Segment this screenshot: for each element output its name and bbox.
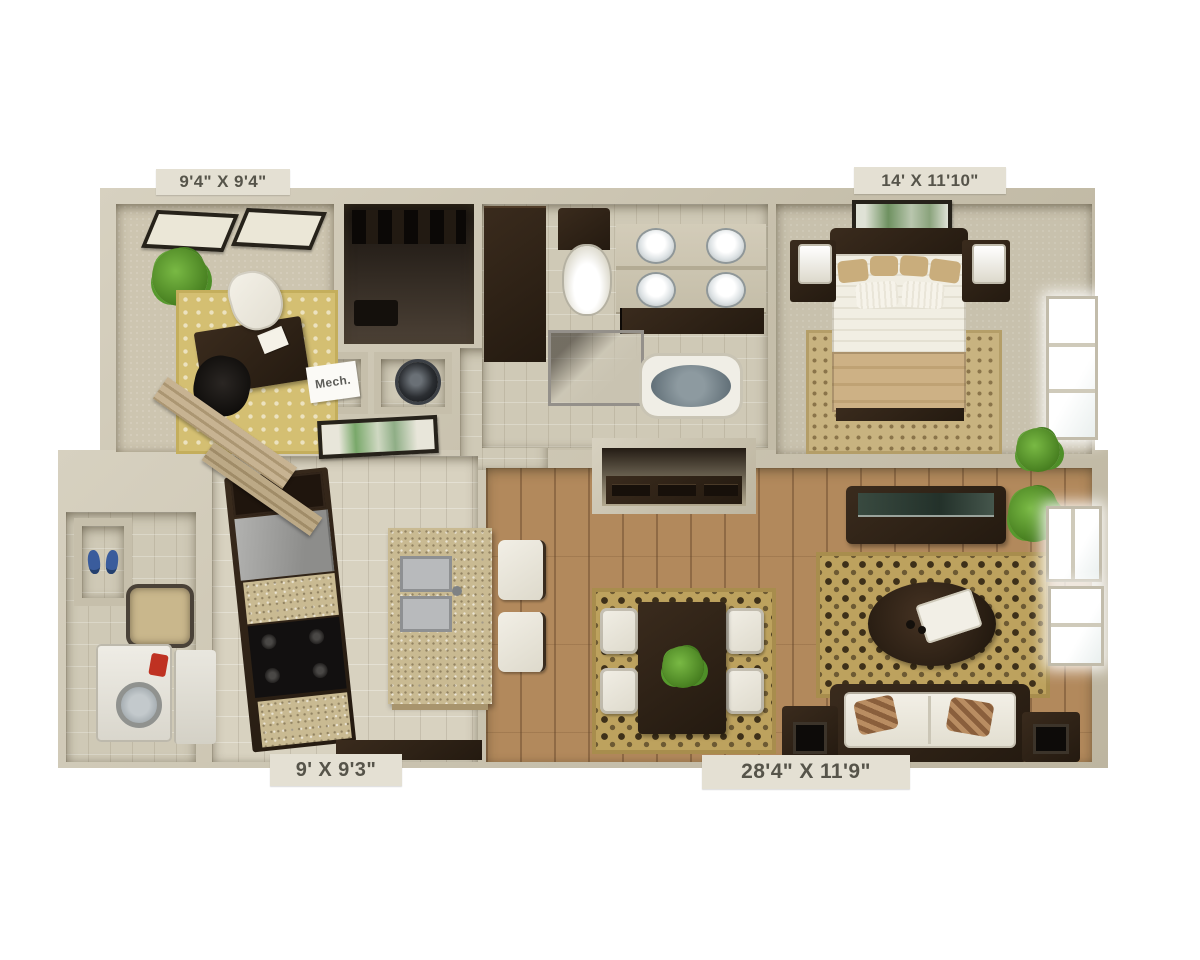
detergent-bottle: [148, 653, 169, 678]
bar-chair: [498, 612, 546, 672]
bed-pillow-tan: [929, 258, 962, 284]
den-picture-frame: [141, 210, 239, 252]
drawer: [704, 484, 738, 496]
table-lamp-left: [798, 244, 832, 284]
burner: [261, 633, 277, 649]
bath-linen-cabinet: [484, 206, 546, 362]
toilet: [564, 246, 610, 314]
dryer: [174, 650, 216, 744]
room-dims-bedroom: 14' X 11'10": [854, 167, 1006, 194]
dining-chair: [726, 608, 764, 654]
bed-pillow-white: [855, 281, 899, 310]
bed-pillow-tan: [899, 255, 928, 277]
speaker-front: [793, 722, 827, 754]
coffee-table-tray: [915, 588, 983, 644]
vanity-sink: [708, 230, 744, 262]
bed-pillow-white: [901, 281, 945, 310]
bed-pillow-tan: [837, 258, 869, 283]
bed-footboard: [836, 408, 964, 421]
cushion-split: [928, 696, 931, 744]
dining-centerpiece-plant: [662, 646, 704, 688]
side-table-left: [782, 706, 838, 762]
hall-closet-walls: [592, 438, 756, 514]
vanity-sink: [638, 274, 674, 306]
stacked-washer: [398, 362, 438, 402]
washer-door: [116, 682, 162, 728]
burner: [264, 667, 280, 683]
hall-closet-interior: [602, 448, 746, 506]
coffee-cup: [918, 626, 926, 634]
den-picture-frame: [231, 208, 327, 250]
floor-plan-image: 9'4" X 9'4" 14' X 11'10" 9' X 9'3" 28'4"…: [0, 0, 1200, 960]
bathtub-water: [651, 365, 731, 407]
walkin-closet: [344, 204, 474, 344]
tv-screen: [858, 493, 994, 517]
island-faucet: [452, 586, 462, 596]
shower: [548, 330, 644, 406]
bedroom-plant: [1016, 428, 1060, 472]
mech-sign: Mech.: [306, 361, 361, 404]
vanity-ledge: [616, 266, 766, 270]
room-dims-den: 9'4" X 9'4": [156, 169, 290, 195]
bathtub: [642, 356, 740, 416]
hanging-clothes: [352, 210, 466, 244]
vanity-sink: [708, 274, 744, 306]
dining-chair: [600, 608, 638, 654]
island-sink: [400, 556, 452, 592]
coffee-cup: [906, 620, 915, 629]
burner: [308, 628, 324, 644]
closet-dresser: [606, 476, 742, 504]
coffee-table: [868, 582, 996, 666]
dining-chair: [600, 668, 638, 714]
living-window-lower: [1048, 586, 1104, 666]
closet-floor-item: [354, 300, 398, 326]
island-sink: [400, 596, 452, 632]
hallway-art: [317, 415, 439, 459]
pet-basket: [126, 584, 194, 648]
media-console: [846, 486, 1006, 544]
living-window-upper: [1046, 506, 1102, 582]
bedroom-window: [1046, 296, 1098, 440]
window-mullion: [1049, 343, 1095, 347]
vanity-sink: [638, 230, 674, 262]
window-mullion: [1071, 509, 1075, 579]
room-dims-living-dining: 28'4" X 11'9": [702, 755, 910, 789]
toilet-alcove: [558, 208, 610, 250]
shoe-closet: [74, 518, 132, 606]
kitchen-island: [388, 528, 492, 704]
room-dims-kitchen: 9' X 9'3": [270, 754, 402, 786]
speaker-front: [1033, 724, 1069, 754]
washing-machine: [96, 644, 172, 742]
sofa-throw-pillow: [945, 696, 994, 737]
drawer: [612, 484, 650, 496]
bath-vanity-counter: [616, 224, 766, 314]
window-mullion: [1051, 623, 1101, 627]
table-lamp-right: [972, 244, 1006, 284]
drawer: [658, 484, 696, 496]
bar-chair: [498, 540, 546, 600]
burner: [312, 662, 328, 678]
side-table-right: [1022, 712, 1080, 762]
window-mullion: [1049, 389, 1095, 393]
bed-blanket: [832, 352, 966, 412]
bed-pillow-tan: [870, 256, 898, 276]
stove-cooktop: [248, 617, 347, 698]
dining-chair: [726, 668, 764, 714]
